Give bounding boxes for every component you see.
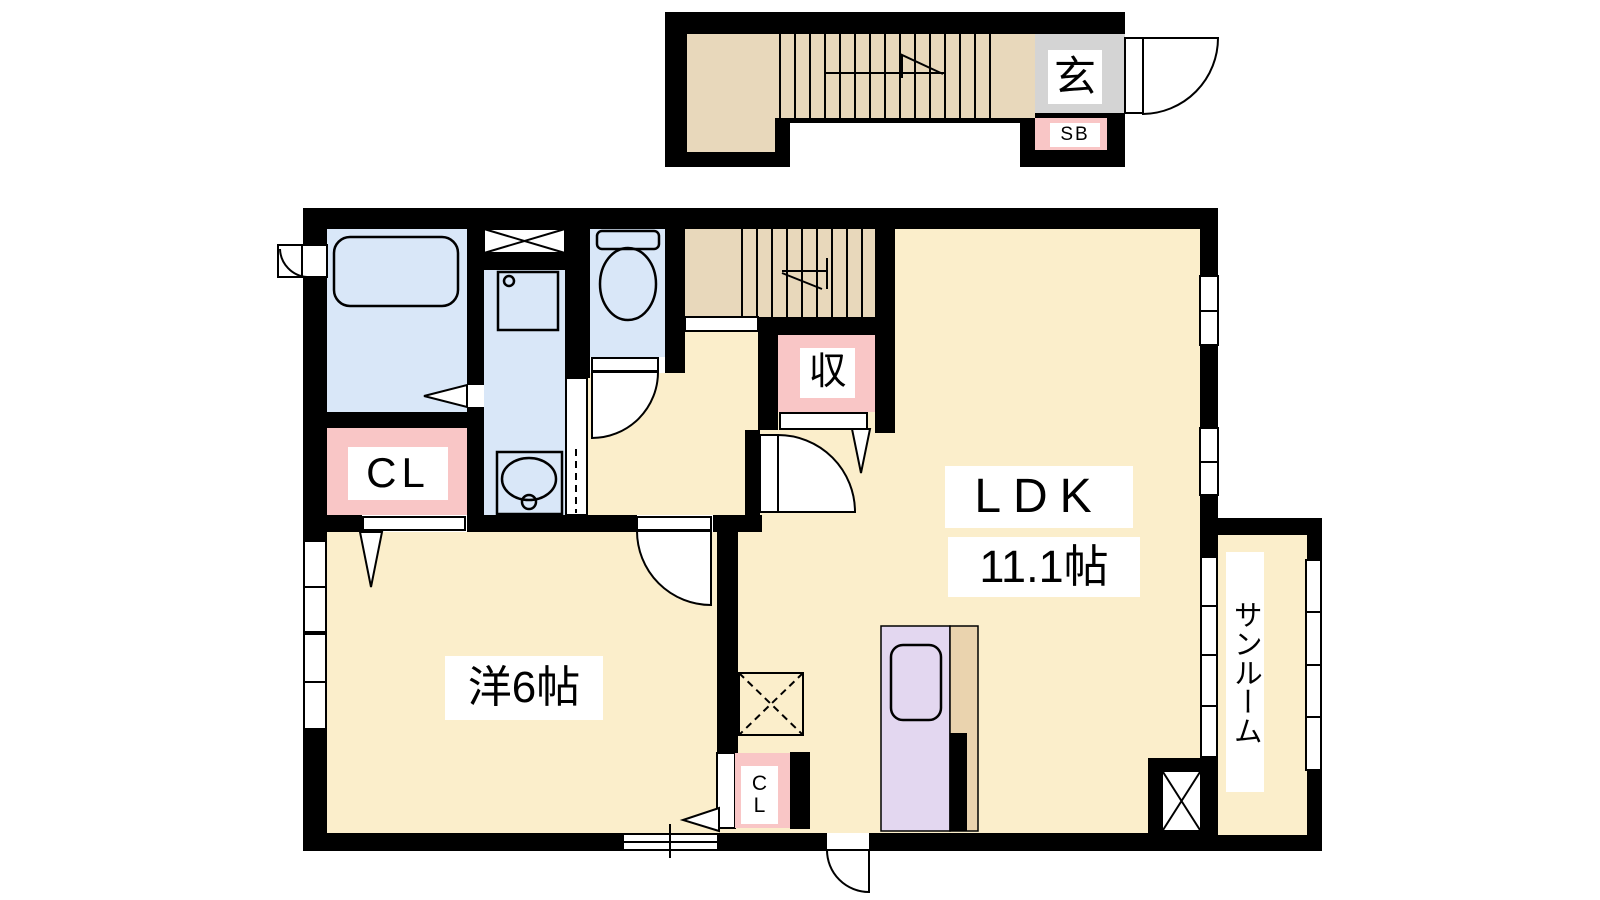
wall (327, 412, 467, 428)
bath-door-gap (467, 385, 484, 407)
washroom-sliding-door (566, 378, 587, 515)
wall (717, 532, 738, 753)
shoe-box-label: SB (1050, 123, 1100, 147)
wall (758, 335, 778, 430)
wall (565, 229, 590, 378)
wall (950, 733, 967, 831)
floor-plan-drawing (0, 0, 1600, 900)
closet-label: CL (348, 447, 448, 500)
western-door-leaf (637, 517, 711, 530)
wall (758, 317, 875, 335)
wall (745, 430, 760, 515)
closet2-label-line2: L (754, 795, 766, 817)
entrance-stair-block (665, 12, 1218, 167)
storage-label: 収 (800, 348, 855, 398)
stair-bottom-step (685, 317, 758, 331)
entrance-door-swing (1143, 38, 1218, 114)
rear-door-swing (827, 850, 869, 892)
wall (875, 229, 895, 433)
closet2-label: C L (741, 766, 778, 824)
toilet-door-leaf (592, 358, 658, 371)
wall (665, 229, 685, 373)
closet-door-leaf (363, 517, 465, 530)
storage-door-leaf (780, 413, 867, 429)
ldk-door-leaf (760, 435, 778, 512)
bathroom-floor (327, 229, 467, 412)
entrance-door-leaf (1125, 38, 1143, 113)
floor-plan: 玄 SB 収 CL C L LDK 11.1帖 洋6帖 サンルーム (0, 0, 1600, 900)
closet2-label-line1: C (752, 773, 767, 795)
ldk-size-label: 11.1帖 (948, 537, 1140, 597)
wall (790, 752, 810, 829)
western-room-label: 洋6帖 (445, 656, 603, 720)
wall (467, 229, 484, 515)
wall-notch (790, 123, 1020, 167)
wall (484, 253, 565, 270)
sunroom-label: サンルーム (1226, 552, 1264, 792)
ldk-label: LDK (945, 466, 1133, 528)
entrance-label: 玄 (1048, 50, 1102, 104)
stair-landing-floor (687, 34, 775, 152)
rear-door-gap (827, 833, 869, 851)
